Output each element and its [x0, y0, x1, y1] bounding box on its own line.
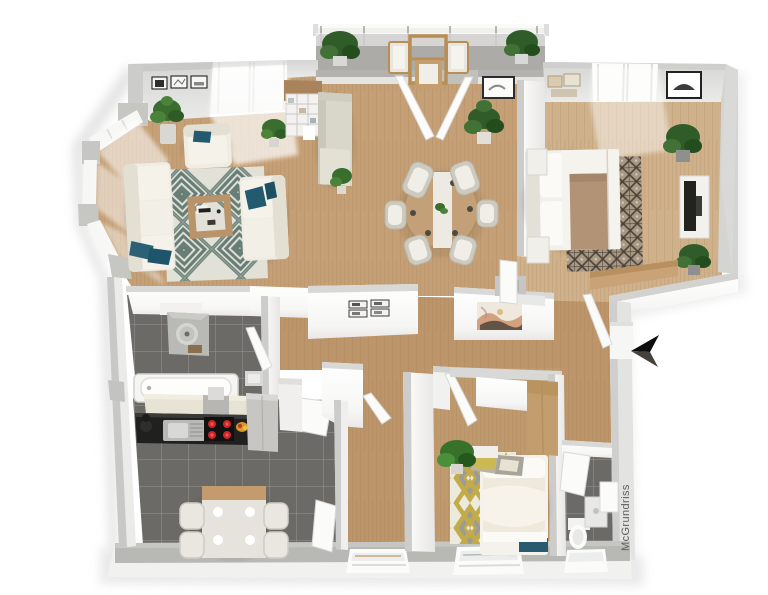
svg-text:McGrundriss: McGrundriss	[620, 484, 632, 551]
